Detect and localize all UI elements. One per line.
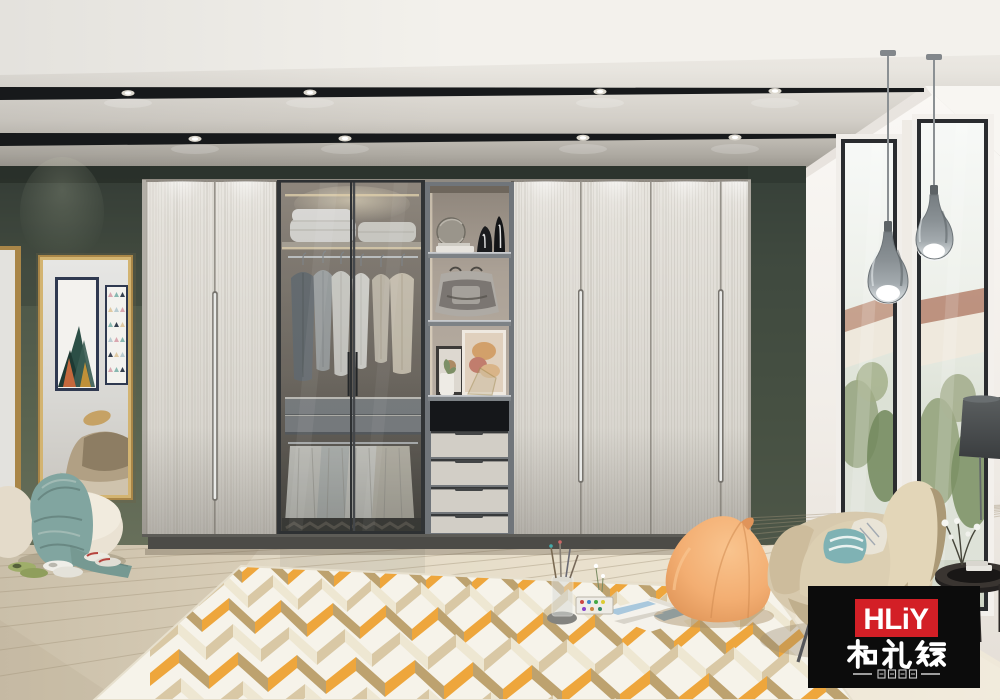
svg-text:HLiY: HLiY (863, 603, 929, 636)
